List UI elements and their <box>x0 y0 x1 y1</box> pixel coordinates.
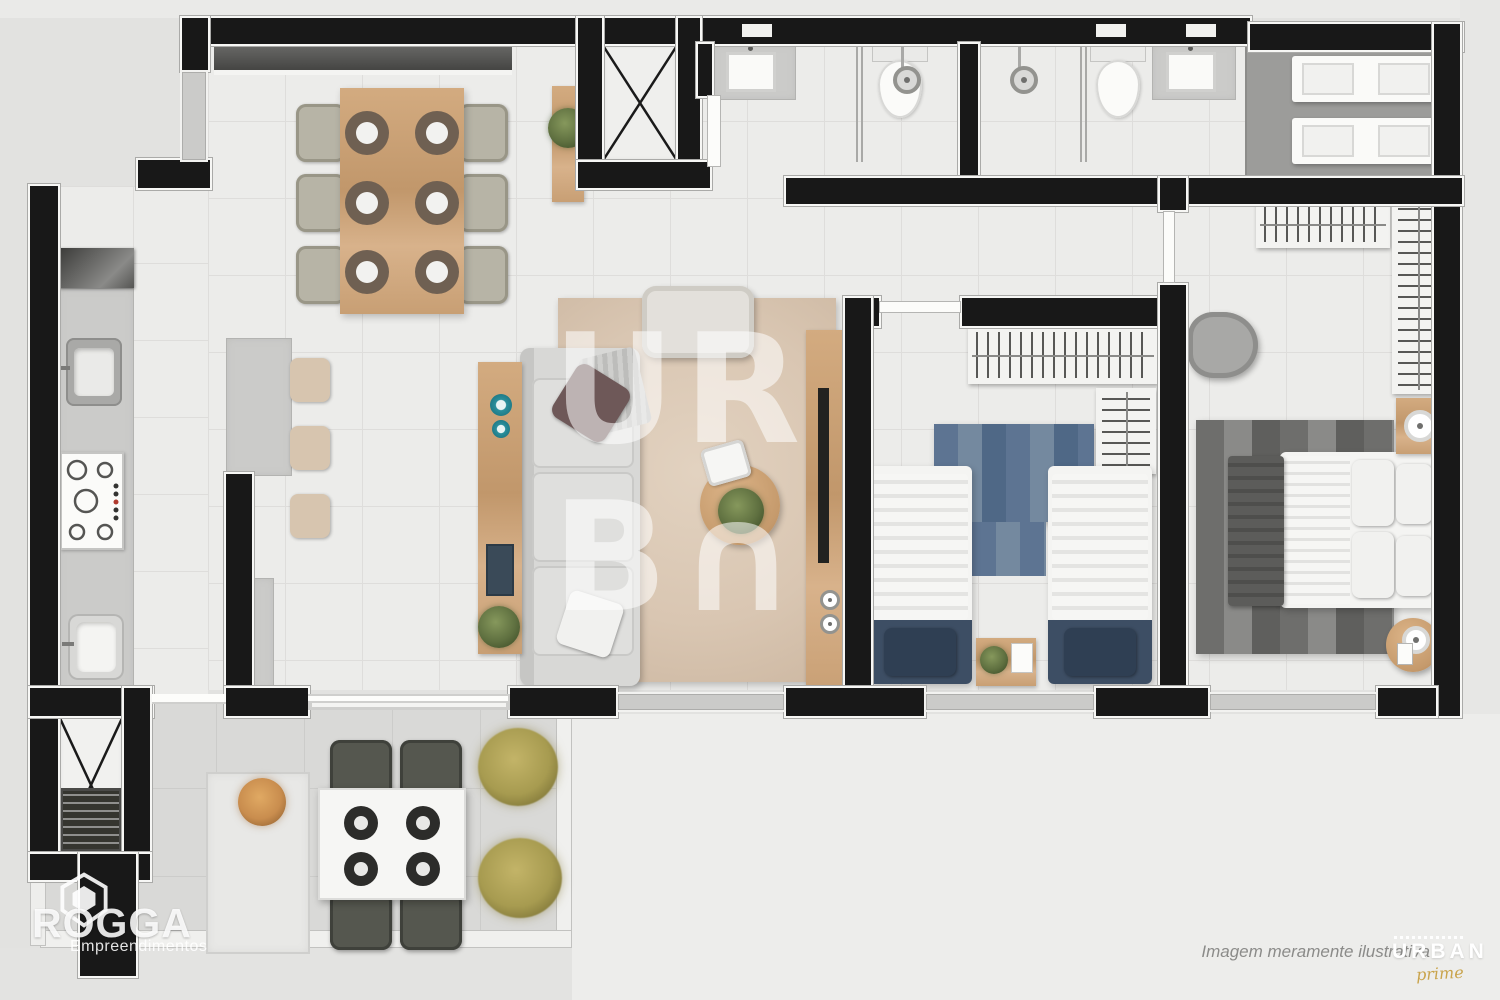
balcony-chair-3 <box>330 892 392 950</box>
door-master <box>1164 212 1174 282</box>
console-plant <box>478 606 520 648</box>
master-pillow-3 <box>1352 532 1394 598</box>
refrigerator <box>58 248 134 288</box>
dining-chair-4 <box>458 104 508 162</box>
twin-nightstand-frame <box>1012 644 1032 672</box>
bar-stool-2 <box>290 426 330 470</box>
wall-top-right <box>1250 24 1462 50</box>
ac-condenser-unit <box>60 788 122 852</box>
door-twin-room <box>880 302 960 312</box>
wall-master-left <box>1160 285 1186 690</box>
console-vase-teal-2 <box>492 420 510 438</box>
bath2-shower-glass-2 <box>1085 44 1087 162</box>
service-unit-1-lid-left <box>1302 63 1354 95</box>
bath1-faucet <box>748 46 753 51</box>
wall-island-foot <box>226 688 308 716</box>
rogga-logo: ROGGA Empreendimentos <box>22 872 272 982</box>
master-pillow-2 <box>1396 464 1432 524</box>
dining-chair-1 <box>296 104 346 162</box>
bath2-shower-head <box>1010 66 1038 94</box>
vent-bath2-b <box>1186 24 1216 37</box>
bath1-shower-head <box>893 66 921 94</box>
elevator-x-mark <box>602 44 678 162</box>
master-lamp-top <box>1404 410 1436 442</box>
kitchen-sink <box>66 338 122 406</box>
balcony-right-parapet <box>556 700 572 948</box>
floor-plan-render: UR B∩ <box>0 0 1500 1000</box>
kitchen-faucet <box>60 366 70 370</box>
service-unit-2-lid-left <box>1302 125 1354 157</box>
wall-topleft-vertical <box>182 18 208 70</box>
bath1-shower-arm <box>901 44 904 68</box>
service-unit-1-lid-right <box>1378 63 1430 95</box>
dining-chair-6 <box>458 246 508 304</box>
service-unit-2 <box>1292 118 1440 164</box>
elevator-shaft <box>602 44 678 162</box>
console-books <box>486 544 514 596</box>
twin-bed-right-duvet <box>1052 474 1148 620</box>
wall-master-left-upper <box>1160 178 1186 210</box>
master-armchair <box>1188 312 1258 378</box>
dining-chair-3 <box>296 246 346 304</box>
watermark-line-1: UR <box>552 306 808 474</box>
urban-logo-name: URBAN <box>1392 940 1488 964</box>
wall-top-main <box>182 18 694 44</box>
bath2-shower-arm <box>1018 44 1021 68</box>
window-twin-room <box>924 692 1096 712</box>
wall-bath1-left <box>698 44 712 96</box>
master-wardrobe-top <box>1256 200 1390 248</box>
vent-bath2-a <box>1096 24 1126 37</box>
wall-left-corner <box>138 160 210 188</box>
rogga-subtitle: Empreendimentos <box>70 938 207 956</box>
master-bed-throw <box>1228 456 1284 606</box>
kitchen-sink-basin <box>74 348 114 396</box>
master-pillow-4 <box>1396 536 1432 596</box>
outside-top-strip <box>0 0 1500 18</box>
master-wardrobe-top-rail <box>1260 224 1386 226</box>
place-setting-1 <box>345 111 389 155</box>
wall-bottom-a <box>510 688 616 716</box>
tv-speaker-1 <box>820 590 840 610</box>
wall-twin-left <box>845 298 871 690</box>
wall-shaft-right <box>124 688 150 880</box>
twin-bed-left <box>868 466 972 684</box>
balcony-plant-2 <box>478 838 562 918</box>
vent-bath1 <box>742 24 772 37</box>
twin-wardrobe-rail <box>972 355 1154 357</box>
twin-nightstand-plant <box>980 646 1008 674</box>
balcony-plate-1 <box>344 806 378 840</box>
master-wardrobe-right-rail <box>1418 200 1420 390</box>
bar-stool-1 <box>290 358 330 402</box>
dining-chair-2 <box>296 174 346 232</box>
wall-island <box>226 474 252 690</box>
twin-wardrobe <box>968 326 1158 384</box>
wall-elevator-left <box>578 18 602 164</box>
laundry-sink <box>68 614 124 680</box>
bath1-shower-glass <box>856 44 858 162</box>
wall-bath-divider <box>960 44 978 184</box>
twin-bed-left-pillow <box>884 628 956 676</box>
bath2-shower-glass <box>1080 44 1082 162</box>
kitchen-island-lower <box>252 578 274 690</box>
console-vase-teal-1 <box>490 394 512 416</box>
balcony-plant-1 <box>478 728 558 806</box>
service-unit-1 <box>1292 56 1440 102</box>
urban-prime-logo: URBAN prime <box>1392 932 1478 992</box>
twin-rug-tongue <box>972 522 1046 576</box>
wall-elevator-right <box>678 18 700 166</box>
window-sill-left <box>180 70 208 162</box>
sliding-door-glass-1 <box>308 696 508 701</box>
door-bath1 <box>708 96 720 166</box>
bath2-sink <box>1166 52 1216 92</box>
wall-mid-long <box>786 178 1462 204</box>
window-master <box>1208 692 1378 712</box>
wall-right <box>1434 24 1460 716</box>
watermark: UR B∩ <box>552 306 808 642</box>
window-living <box>616 692 786 712</box>
wall-twin-top-right <box>962 298 1162 326</box>
twin-bed-right-pillow <box>1064 628 1136 676</box>
balcony-plate-4 <box>406 852 440 886</box>
twin-bed-left-duvet <box>872 474 968 620</box>
tv-speaker-2 <box>820 614 840 634</box>
kitchen-island <box>226 338 292 476</box>
wall-bottom-b <box>786 688 924 716</box>
balcony-table <box>318 788 466 900</box>
cooktop <box>60 452 124 550</box>
laundry-faucet <box>62 642 74 646</box>
place-setting-2 <box>345 181 389 225</box>
bar-stool-3 <box>290 494 330 538</box>
wall-top-bath <box>694 18 1250 44</box>
place-setting-4 <box>415 111 459 155</box>
sliding-door-kitchen <box>152 694 226 702</box>
master-bed-duvet <box>1280 456 1350 604</box>
wall-cabinet <box>214 44 512 70</box>
wall-left-main <box>30 186 58 880</box>
place-setting-3 <box>345 250 389 294</box>
wall-cabinet-edge <box>214 70 512 75</box>
twin-bed-right <box>1048 466 1152 684</box>
balcony-plate-2 <box>406 806 440 840</box>
bath2-faucet <box>1188 46 1193 51</box>
cooktop-burners <box>60 452 124 550</box>
twin-shoe-rack <box>1096 388 1156 474</box>
place-setting-6 <box>415 250 459 294</box>
laundry-sink-basin <box>76 622 116 672</box>
sliding-door-glass-2 <box>312 703 506 707</box>
bath1-sink <box>726 52 776 92</box>
urban-logo-prime-script: prime <box>1416 963 1465 984</box>
dining-chair-5 <box>458 174 508 232</box>
watermark-line-2: B∩ <box>552 474 808 642</box>
wall-elevator-bottom <box>578 162 710 188</box>
balcony-counter-plant <box>238 778 286 826</box>
balcony-chair-4 <box>400 892 462 950</box>
tv-screen <box>818 388 829 563</box>
balcony-plate-3 <box>344 852 378 886</box>
wall-bottom-c <box>1096 688 1208 716</box>
master-pillow-1 <box>1352 460 1394 526</box>
master-frame-small <box>1398 644 1412 664</box>
bath1-shower-glass-2 <box>861 44 863 162</box>
service-unit-2-lid-right <box>1378 125 1430 157</box>
tech-shaft <box>58 714 124 856</box>
place-setting-5 <box>415 181 459 225</box>
wall-bottom-d <box>1378 688 1436 716</box>
twin-shoe-rack-rail <box>1126 392 1128 470</box>
urban-logo-tagline <box>1394 936 1466 939</box>
